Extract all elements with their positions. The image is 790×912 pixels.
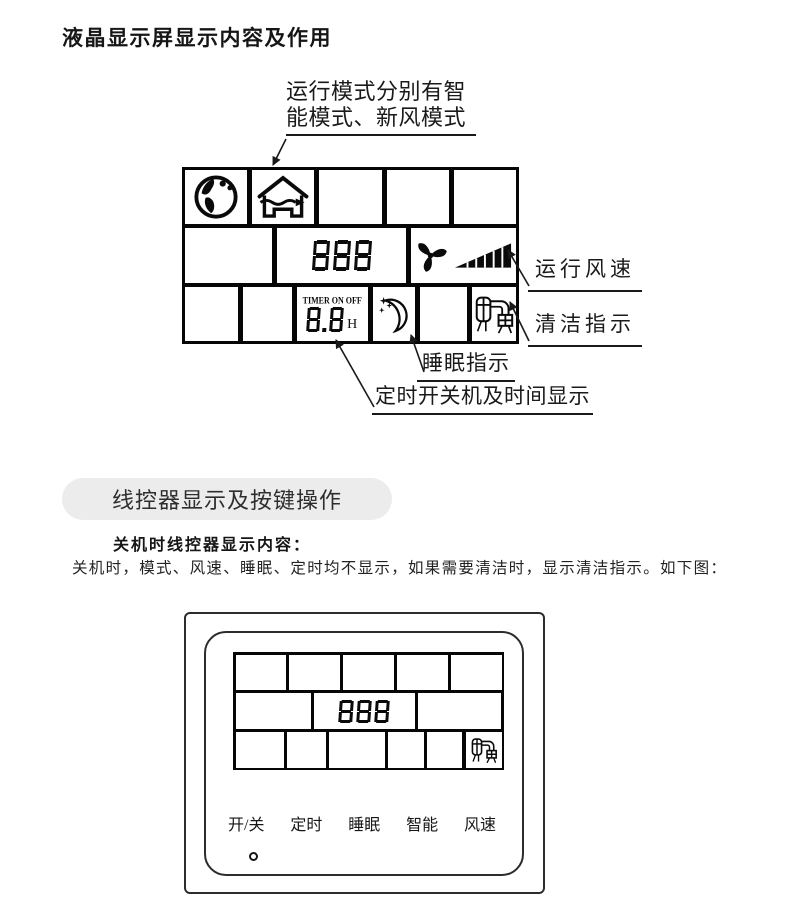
section-subheading: 关机时线控器显示内容： (113, 531, 311, 555)
lcd-cell-empty (185, 228, 272, 282)
lcd-cell-empty (420, 287, 466, 341)
lcd-cell-empty (185, 287, 238, 341)
page-title: 液晶显示屏显示内容及作用 (62, 22, 332, 52)
controller-diagram: 开/关 定时 睡眠 智能 风速 (184, 612, 545, 894)
lcd-row-3 (236, 732, 502, 768)
timer-unit: H (347, 318, 357, 332)
lcd-cell-empty (289, 655, 339, 691)
timer-caption: TIMER ON OFF (303, 295, 362, 306)
lcd-cell-empty (397, 655, 447, 691)
lcd-cell-empty (387, 170, 449, 224)
lcd-cell-empty (451, 655, 501, 691)
section-body: 关机时，模式、风速、睡眠、定时均不显示，如果需要清洁时，显示清洁指示。如下图： (72, 556, 727, 578)
button-fan-speed: 风速 (464, 811, 496, 835)
lcd-cell-empty (343, 655, 393, 691)
fan-speed-label: 运行风速 (528, 253, 642, 292)
fan-icon (414, 239, 447, 272)
controller-lcd (233, 652, 504, 770)
seven-segment-main (311, 240, 371, 271)
vacuum-clean-icon (474, 293, 514, 335)
speed-wedge-icon (453, 240, 513, 270)
lcd-cell-mode-smart (185, 170, 247, 224)
lcd-cell-empty (427, 732, 462, 768)
clean-indicator-label: 清洁指示 (528, 308, 642, 347)
sleep-indicator-label: 睡眠指示 (417, 347, 515, 382)
lcd-cell-empty (418, 693, 501, 729)
lcd-cell-empty (319, 170, 381, 224)
lcd-cell-clean (472, 287, 516, 341)
lcd-cell-empty (388, 732, 424, 768)
lcd-cell-empty (287, 732, 326, 768)
lcd-row-2 (185, 228, 516, 282)
lcd-cell-empty (236, 732, 284, 768)
button-timer: 定时 (290, 811, 322, 835)
lcd-row-1 (236, 655, 502, 691)
lcd-cell-empty (236, 655, 286, 691)
lcd-row-1 (185, 170, 516, 224)
mode-annotation: 运行模式分别有智 能模式、新风模式 (286, 79, 476, 136)
lcd-cell-main-digits (314, 693, 415, 729)
lcd-row-3: TIMER ON OFF H (185, 287, 516, 341)
lcd-display-diagram: TIMER ON OFF H (182, 167, 519, 344)
lcd-cell-empty (329, 732, 384, 768)
seven-segment-main (339, 700, 391, 723)
section-header: 线控器显示及按键操作 (62, 478, 392, 520)
button-smart: 智能 (406, 811, 438, 835)
vacuum-clean-icon (470, 736, 498, 764)
lcd-cell-mode-fresh-air (252, 170, 314, 224)
controller-panel: 开/关 定时 睡眠 智能 风速 (204, 631, 524, 876)
lcd-row-2 (236, 693, 502, 729)
seven-segment-timer (306, 307, 344, 332)
lcd-cell-clean (466, 732, 502, 768)
lcd-cell-empty (454, 170, 516, 224)
lcd-cell-timer: TIMER ON OFF H (297, 287, 368, 341)
lcd-cell-main-digits (277, 228, 405, 282)
lcd-cell-sleep (373, 287, 415, 341)
button-sleep: 睡眠 (348, 811, 380, 835)
timer-value-line: H (307, 307, 357, 332)
button-power: 开/关 (228, 811, 264, 835)
manual-page: 液晶显示屏显示内容及作用 运行模式分别有智 能模式、新风模式 (0, 0, 790, 912)
lcd-cell-fan-speed (411, 228, 516, 282)
timer-display-label: 定时开关机及时间显示 (372, 380, 593, 415)
mode-annotation-line2: 能模式、新风模式 (286, 105, 476, 131)
lcd-cell-empty (236, 693, 311, 729)
mode-annotation-line1: 运行模式分别有智 (286, 79, 476, 105)
power-indicator-dot (249, 852, 258, 861)
globe-icon (193, 174, 239, 220)
button-labels-row: 开/关 定时 睡眠 智能 风速 (206, 811, 522, 835)
house-wave-icon (255, 175, 311, 220)
moon-stars-icon (377, 295, 411, 333)
lcd-cell-empty (243, 287, 291, 341)
